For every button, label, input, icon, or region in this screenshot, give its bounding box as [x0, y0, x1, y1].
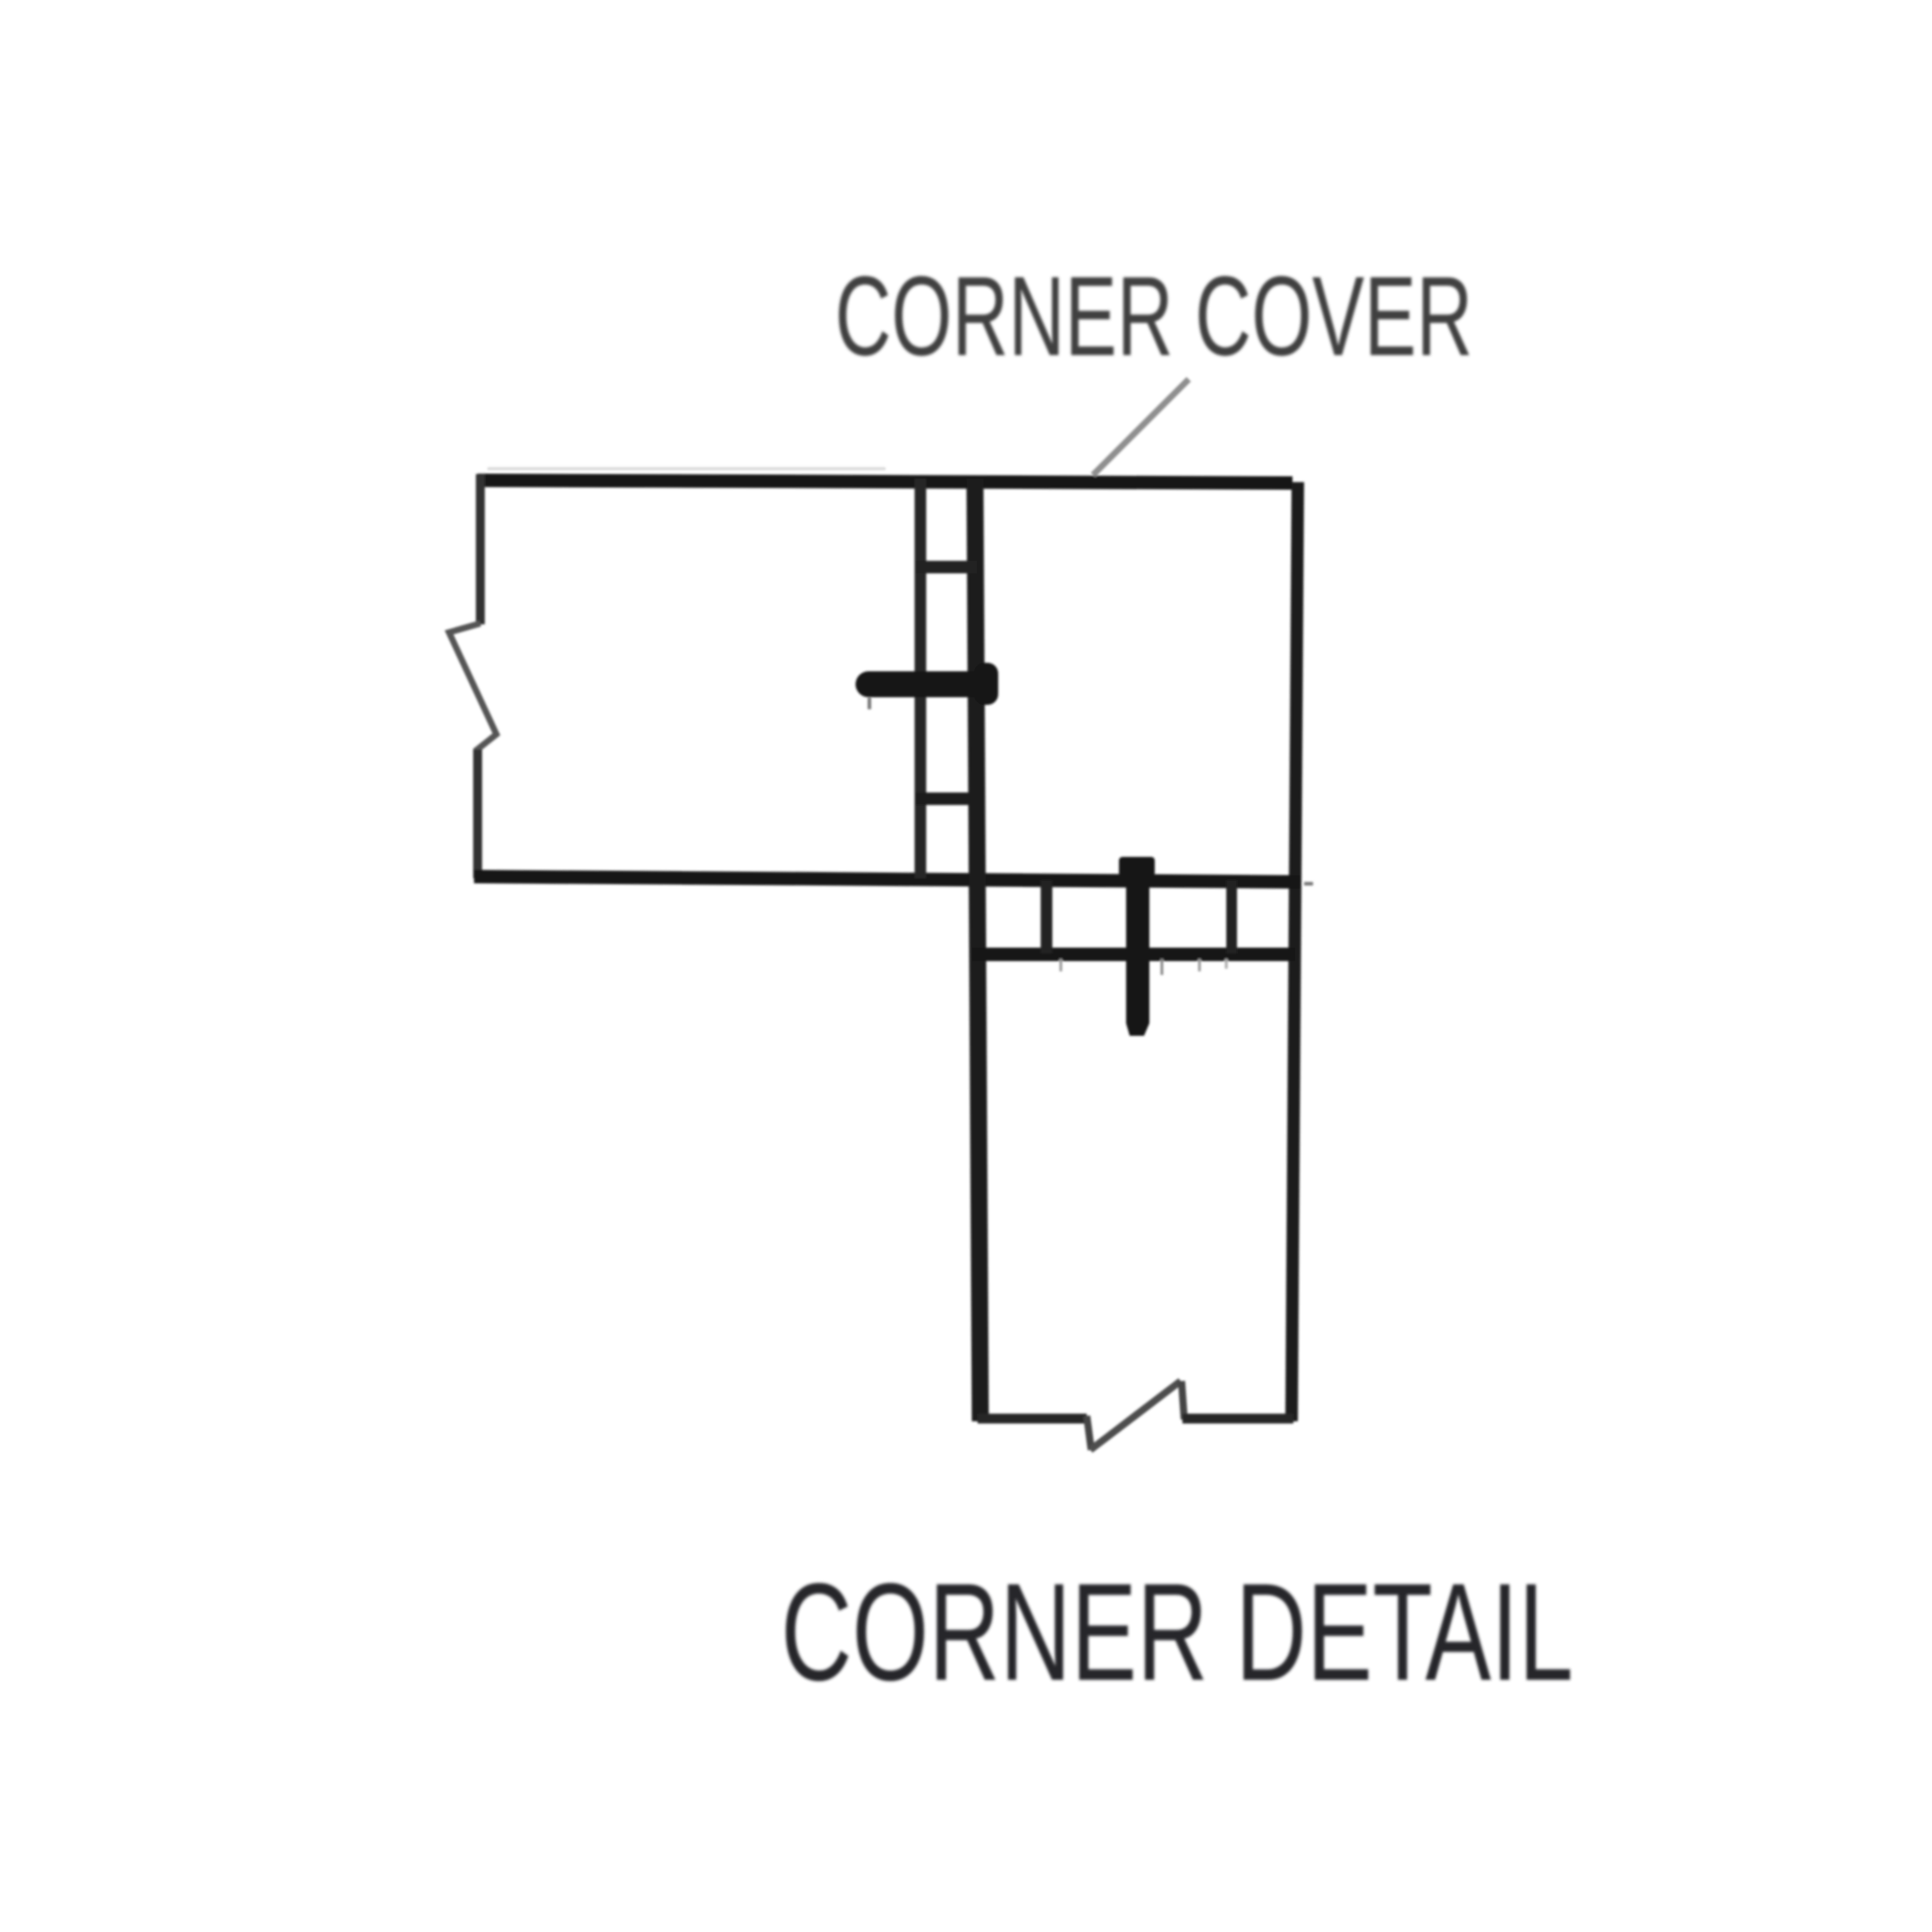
svg-text:CORNER COVER: CORNER COVER	[835, 253, 1473, 379]
svg-text:CORNER DETAIL: CORNER DETAIL	[781, 1555, 1573, 1709]
